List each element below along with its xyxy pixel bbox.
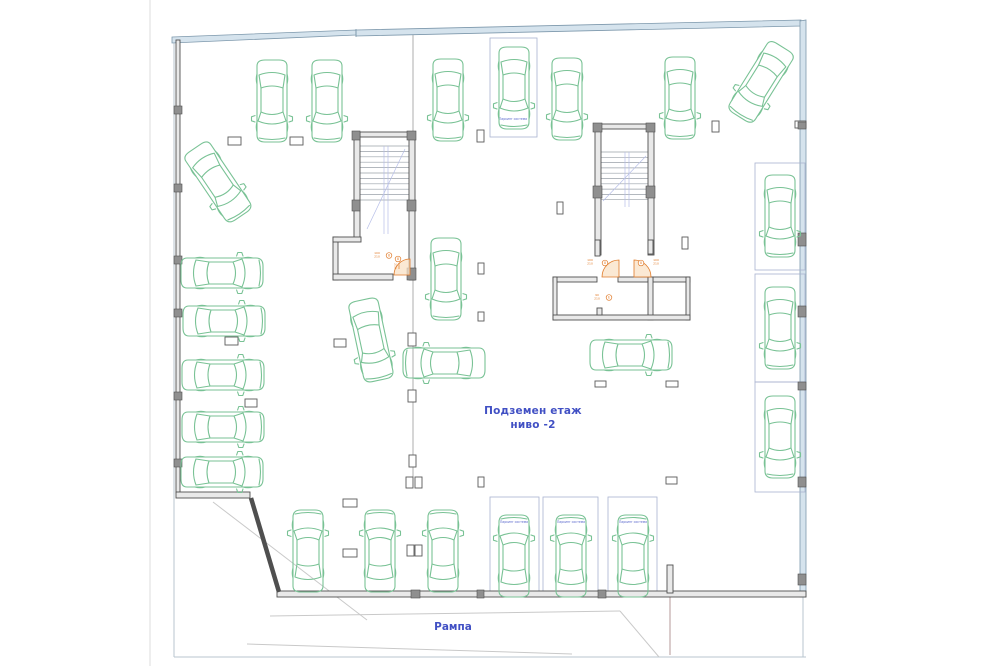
column-marker bbox=[343, 549, 357, 557]
car-icon bbox=[423, 510, 464, 592]
parking-system-label: Паркинг система bbox=[499, 117, 527, 121]
wall-pilaster bbox=[593, 123, 602, 132]
car-icon bbox=[342, 296, 399, 385]
doors-layer: 100210810021081002108100210890210Е bbox=[374, 251, 659, 301]
car-icon bbox=[426, 238, 467, 320]
parking-system-label: Паркинг система bbox=[557, 520, 585, 524]
car-icon bbox=[182, 407, 264, 448]
svg-text:Е: Е bbox=[608, 296, 610, 300]
plan-line bbox=[270, 611, 620, 616]
svg-text:210: 210 bbox=[374, 255, 380, 259]
wall-pilaster bbox=[352, 131, 360, 140]
wall-segment bbox=[648, 240, 653, 254]
wall-pilaster bbox=[798, 306, 806, 317]
column-marker bbox=[408, 390, 416, 402]
wall-segment bbox=[648, 277, 653, 320]
car-icon bbox=[494, 515, 535, 597]
column-marker bbox=[557, 202, 563, 214]
car-icon bbox=[252, 60, 293, 142]
car-icon bbox=[760, 396, 801, 478]
wall-pilaster bbox=[174, 309, 182, 317]
wall-pilaster bbox=[407, 131, 416, 140]
column-marker bbox=[415, 545, 422, 556]
level-title-line2: ниво -2 bbox=[463, 418, 603, 432]
guide-lines-layer bbox=[150, 0, 806, 666]
parking-space-outline bbox=[490, 497, 539, 594]
wall-pilaster bbox=[798, 382, 806, 390]
column-marker bbox=[712, 121, 719, 132]
wall-pilaster bbox=[646, 186, 655, 198]
car-icon bbox=[551, 515, 592, 597]
svg-text:8: 8 bbox=[397, 257, 399, 261]
car-icon bbox=[660, 57, 701, 139]
column-marker bbox=[477, 130, 484, 142]
cars-layer bbox=[178, 36, 800, 597]
car-icon bbox=[722, 36, 800, 127]
plan-line bbox=[620, 611, 659, 657]
parking-system-label: Паркинг система bbox=[500, 520, 528, 524]
car-icon bbox=[760, 287, 801, 369]
svg-text:8: 8 bbox=[388, 254, 390, 258]
wall-pilaster bbox=[477, 590, 484, 598]
car-icon bbox=[288, 510, 329, 592]
column-marker bbox=[415, 477, 422, 488]
door-size-label: 90210Е bbox=[594, 293, 612, 301]
ramp-label: Рампа bbox=[413, 621, 493, 633]
door-size-label: 1002108 bbox=[393, 256, 401, 269]
wall-segment bbox=[595, 124, 654, 129]
svg-text:8: 8 bbox=[604, 261, 606, 265]
wall-pilaster bbox=[407, 200, 416, 211]
wall-pilaster bbox=[174, 184, 182, 192]
car-icon bbox=[403, 343, 485, 384]
column-marker bbox=[334, 339, 346, 347]
car-icon bbox=[183, 301, 265, 342]
car-icon bbox=[547, 58, 588, 140]
wall-pilaster bbox=[798, 574, 806, 585]
svg-text:8: 8 bbox=[640, 261, 642, 265]
svg-text:210: 210 bbox=[594, 297, 600, 301]
column-marker bbox=[682, 237, 688, 249]
car-icon bbox=[760, 175, 801, 257]
door-size-label: 1002108 bbox=[374, 251, 392, 259]
column-marker bbox=[478, 477, 484, 487]
svg-text:210: 210 bbox=[393, 263, 397, 269]
wall-segment bbox=[686, 277, 690, 320]
wall-segment bbox=[553, 277, 557, 320]
ramp-retaining-wall bbox=[251, 498, 279, 592]
car-icon bbox=[428, 59, 469, 141]
column-marker bbox=[408, 333, 416, 346]
car-icon bbox=[182, 355, 264, 396]
wall-pilaster bbox=[174, 106, 182, 114]
wall-segment bbox=[618, 277, 648, 282]
wall-segment bbox=[667, 565, 673, 593]
column-marker bbox=[478, 263, 484, 274]
wall-segment bbox=[354, 132, 415, 137]
wall-pilaster bbox=[646, 123, 655, 132]
floor-plan-page: 100210810021081002108100210890210ЕПаркин… bbox=[0, 0, 1000, 666]
parking-system-label: Паркинг система bbox=[619, 520, 647, 524]
car-icon bbox=[613, 515, 654, 597]
perimeter-wall bbox=[172, 30, 356, 43]
car-icon bbox=[360, 510, 401, 592]
wall-pilaster bbox=[798, 122, 806, 129]
level-title-line1: Подземен етаж bbox=[463, 404, 603, 418]
level-title: Подземен етаж ниво -2 bbox=[463, 404, 603, 432]
wall-pilaster bbox=[352, 200, 360, 211]
wall-segment bbox=[553, 315, 690, 320]
wall-pilaster bbox=[174, 392, 182, 400]
column-marker bbox=[290, 137, 303, 145]
plan-line bbox=[213, 502, 367, 620]
car-icon bbox=[307, 60, 348, 142]
parking-space-outline bbox=[608, 497, 657, 594]
wall-pilaster bbox=[798, 477, 806, 487]
parking-space-outline bbox=[755, 274, 805, 382]
floor-plan-canvas: 100210810021081002108100210890210ЕПаркин… bbox=[0, 0, 1000, 666]
perimeter-wall bbox=[356, 20, 801, 36]
plan-line bbox=[247, 644, 572, 654]
column-marker bbox=[595, 381, 606, 387]
car-icon bbox=[181, 452, 263, 493]
wall-segment bbox=[553, 277, 597, 282]
column-marker bbox=[409, 455, 416, 467]
car-icon bbox=[178, 137, 258, 228]
wall-segment bbox=[595, 240, 600, 256]
column-marker bbox=[478, 312, 484, 321]
car-icon bbox=[181, 253, 263, 294]
wall-pilaster bbox=[798, 233, 806, 246]
column-marker bbox=[228, 137, 241, 145]
parking-space-outline bbox=[490, 38, 537, 137]
column-marker bbox=[343, 499, 357, 507]
wall-segment bbox=[333, 274, 393, 280]
wall-segment bbox=[333, 237, 338, 280]
wall-segment bbox=[333, 237, 361, 242]
parking-space-outline bbox=[543, 497, 598, 594]
door-size-label: 1002108 bbox=[638, 258, 659, 266]
wall-pilaster bbox=[598, 590, 606, 598]
wall-segment bbox=[354, 132, 360, 240]
wall-segment bbox=[277, 591, 806, 597]
svg-text:210: 210 bbox=[653, 262, 659, 266]
perimeter-walls-layer bbox=[172, 20, 806, 597]
column-marker bbox=[666, 381, 678, 387]
column-marker bbox=[245, 399, 257, 407]
column-marker bbox=[406, 477, 413, 488]
column-marker bbox=[407, 545, 414, 556]
stairs-layer bbox=[359, 146, 648, 234]
wall-segment bbox=[597, 308, 602, 315]
wall-pilaster bbox=[411, 590, 420, 598]
wall-pilaster bbox=[593, 186, 602, 198]
door-size-label: 1002108 bbox=[587, 258, 608, 266]
svg-text:210: 210 bbox=[587, 262, 593, 266]
column-marker bbox=[225, 337, 238, 345]
car-icon bbox=[590, 335, 672, 376]
column-marker bbox=[666, 477, 677, 484]
wall-segment bbox=[653, 277, 690, 282]
